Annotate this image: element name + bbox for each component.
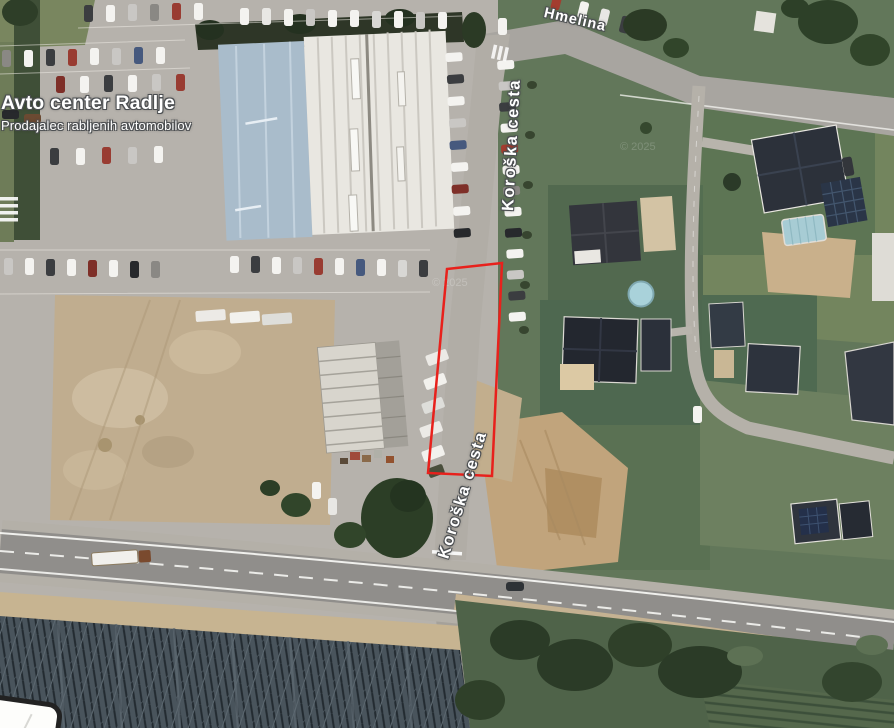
car xyxy=(498,18,507,35)
white-structure-right-edge xyxy=(872,233,894,301)
driveway-tan xyxy=(640,196,676,252)
dirt-field xyxy=(50,295,335,525)
industrial-building xyxy=(218,29,455,241)
map-canvas[interactable]: © 2025 © 2025 Avto center Radlje Prodaja… xyxy=(0,0,894,728)
patio xyxy=(560,364,594,390)
poi-label[interactable]: Avto center Radlje Prodajalec rabljenih … xyxy=(1,92,191,133)
poi-subtitle: Prodajalec rabljenih avtomobilov xyxy=(1,118,191,133)
garage-3 xyxy=(641,319,671,371)
house-far-right xyxy=(845,342,894,425)
poi-title[interactable]: Avto center Radlje xyxy=(1,92,191,115)
car-on-road xyxy=(506,582,524,591)
car xyxy=(328,498,337,515)
car-on-lane xyxy=(693,406,702,423)
pool-rect xyxy=(781,214,826,246)
imagery-watermark: © 2025 xyxy=(432,277,468,289)
solar-panels-1 xyxy=(820,177,867,227)
imagery-watermark-2: © 2025 xyxy=(620,141,656,153)
round-pool xyxy=(629,282,654,307)
car xyxy=(312,482,321,499)
house-2 xyxy=(569,201,641,266)
houses-bottom-right xyxy=(791,496,873,545)
shed-top-right xyxy=(754,11,777,34)
warehouse xyxy=(317,340,408,453)
